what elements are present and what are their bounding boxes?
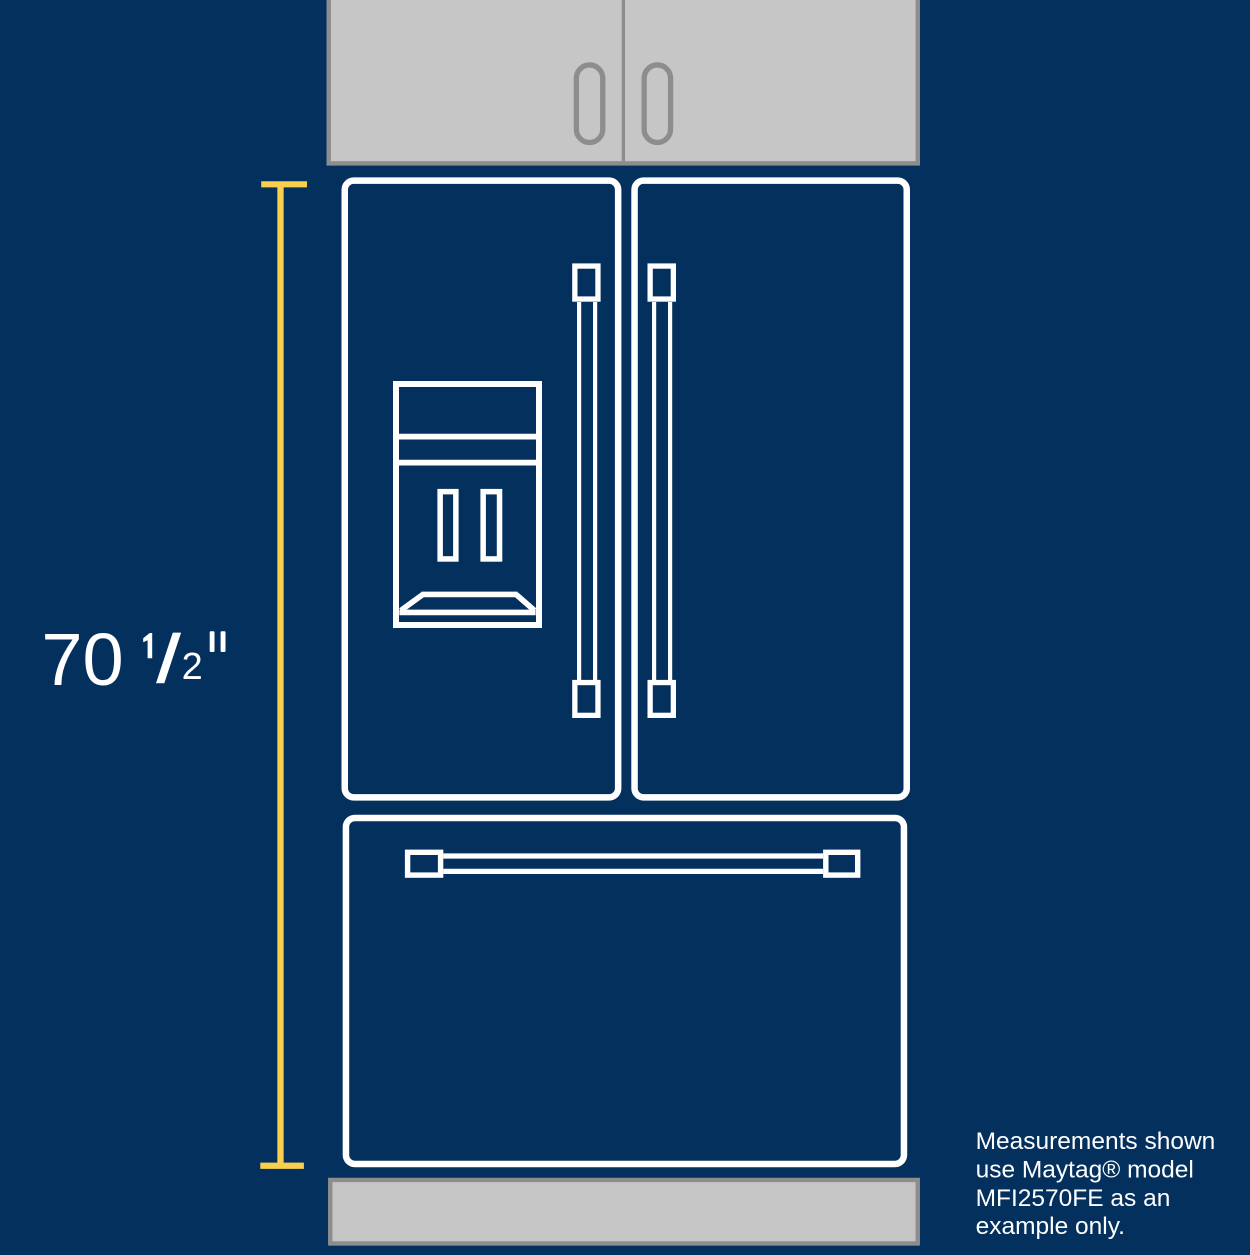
svg-text:example only.: example only. xyxy=(976,1213,1125,1240)
svg-text:70: 70 xyxy=(41,618,123,701)
svg-text:use Maytag® model: use Maytag® model xyxy=(976,1157,1194,1184)
svg-text:2: 2 xyxy=(182,646,203,688)
svg-text:MFI2570FE as an: MFI2570FE as an xyxy=(976,1185,1171,1212)
svg-text:Measurements shown: Measurements shown xyxy=(976,1128,1216,1155)
